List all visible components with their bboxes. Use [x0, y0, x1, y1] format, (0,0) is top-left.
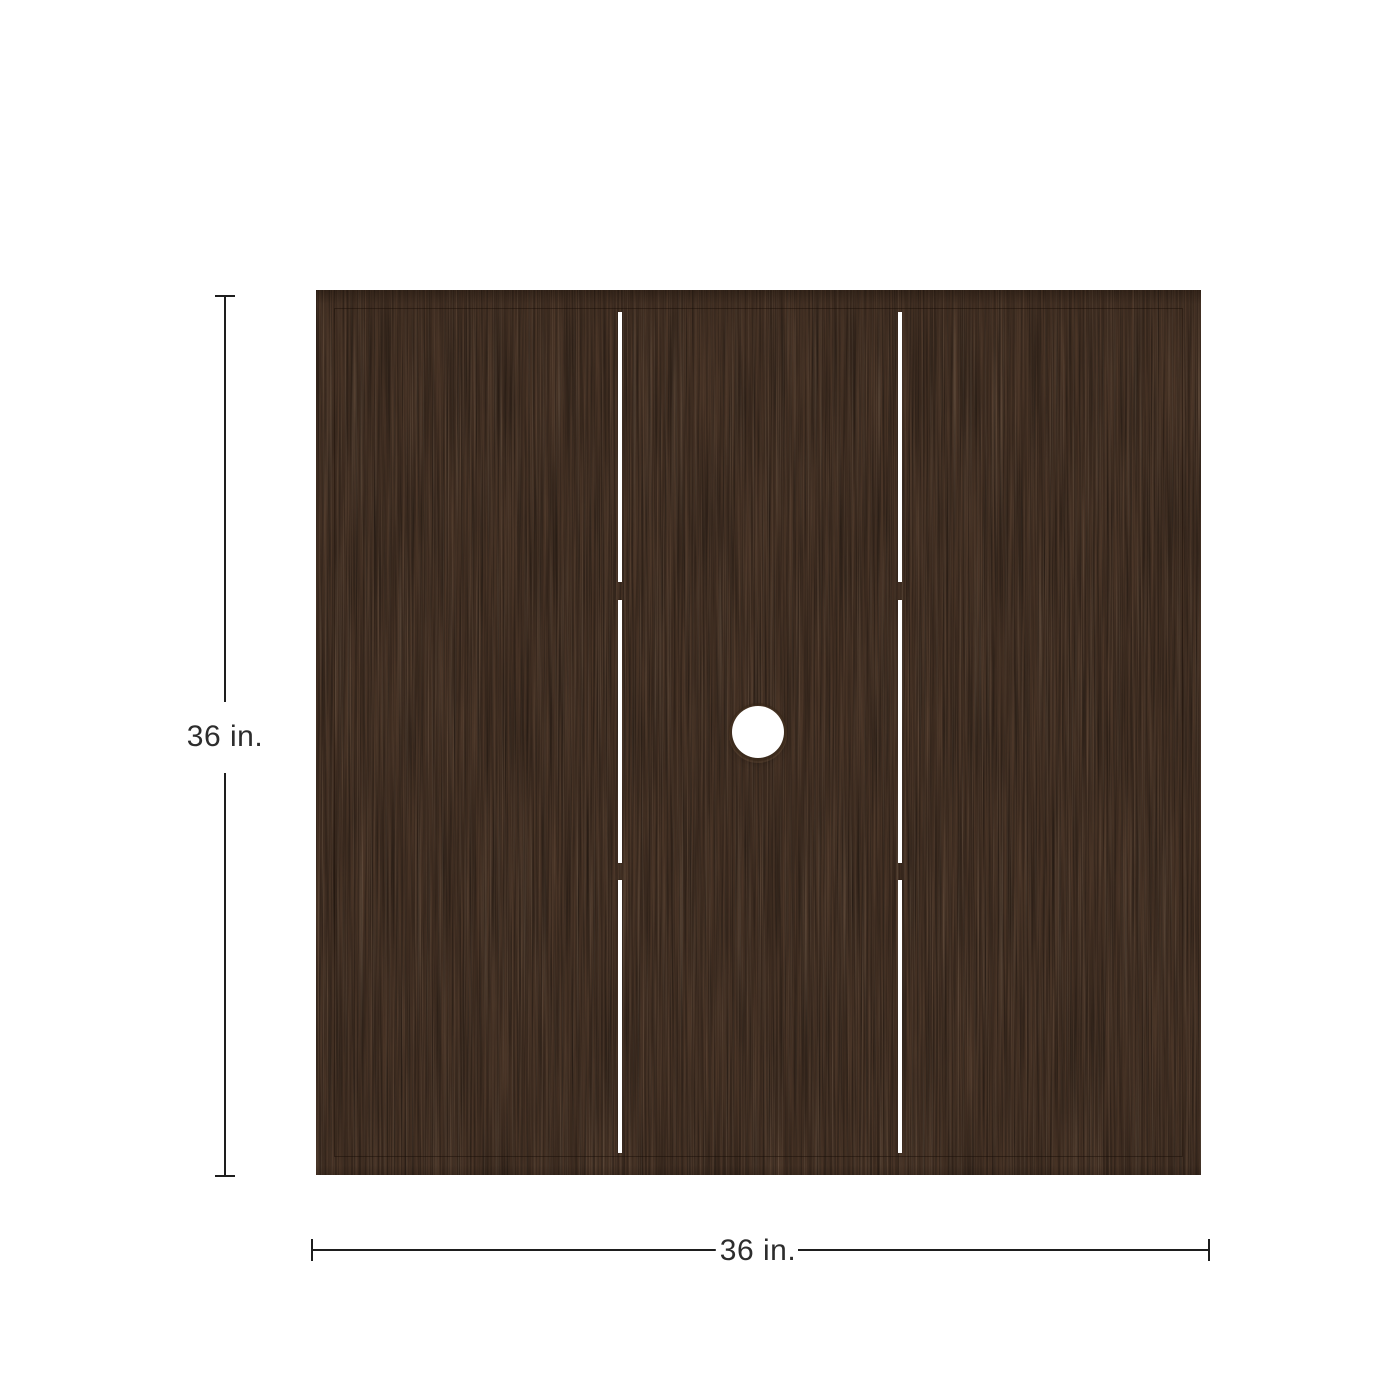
height-dimension-bottom-tick: [215, 1175, 235, 1177]
slat-gap-left-lower: [618, 880, 622, 1153]
width-dimension-label: 36 in.: [716, 1236, 800, 1266]
slat-gap-left-upper: [618, 312, 622, 582]
table-top: [316, 290, 1201, 1175]
slat-gap-right-lower: [898, 880, 902, 1153]
height-dimension-line-lower: [224, 773, 226, 1177]
height-dimension-label: 36 in.: [187, 722, 263, 752]
height-dimension-line-upper: [224, 295, 226, 702]
width-dimension-right-tick: [1208, 1239, 1210, 1261]
width-dimension-line-left: [311, 1249, 717, 1251]
slat-gap-right-middle: [898, 600, 902, 863]
product-dimension-diagram: 36 in. 36 in.: [0, 0, 1400, 1400]
width-dimension-line-right: [798, 1249, 1209, 1251]
slat-gap-left-middle: [618, 600, 622, 863]
slat-gap-right-upper: [898, 312, 902, 582]
umbrella-hole: [732, 706, 784, 758]
